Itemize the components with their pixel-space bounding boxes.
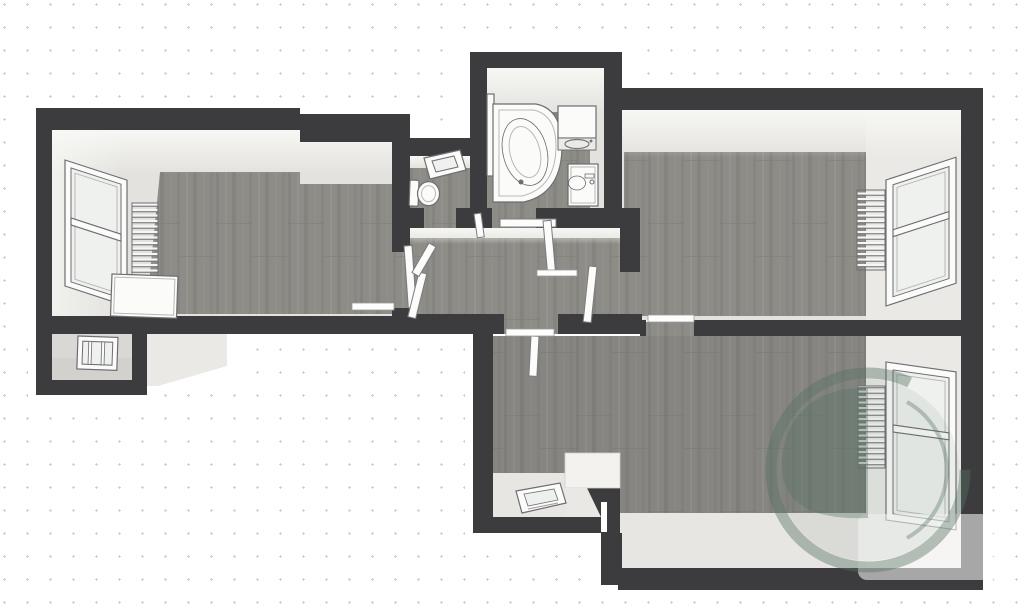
washing-machine xyxy=(558,106,596,150)
sink-cabinet xyxy=(568,164,598,206)
toilet xyxy=(409,180,440,207)
floorplan-image xyxy=(0,0,1024,612)
leaning-panel xyxy=(111,274,178,318)
threshold-left-room xyxy=(352,303,394,310)
hallway-ceiling-wedge xyxy=(410,228,620,244)
room-right-top-wood xyxy=(624,152,866,316)
room-right-top-ceiling-wedge xyxy=(622,110,961,158)
room-left-wood xyxy=(146,172,392,314)
radiator-right-top xyxy=(857,190,885,270)
door-leaf-bottom-room xyxy=(529,336,539,376)
threshold-right-rooms xyxy=(648,315,694,322)
floorplan-svg xyxy=(0,0,1024,612)
alcove-window xyxy=(77,336,118,370)
entry-door-slit xyxy=(601,502,607,532)
doormat xyxy=(537,270,577,276)
bathroom xyxy=(487,94,598,206)
window-right-top xyxy=(886,157,956,306)
threshold-bottom-room xyxy=(506,329,554,336)
radiator-left xyxy=(132,203,158,283)
balcony-alcove xyxy=(77,336,118,370)
